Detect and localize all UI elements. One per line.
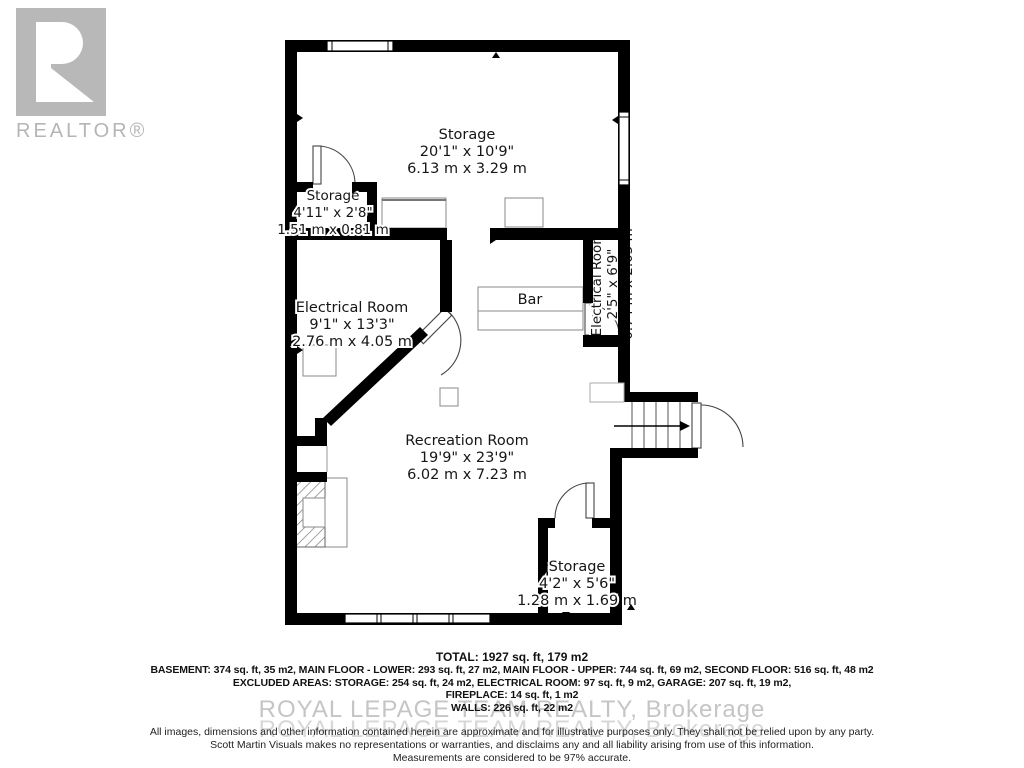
appliance-box	[505, 198, 543, 227]
window-top	[327, 41, 393, 51]
window-right	[619, 112, 629, 185]
disclaimer-line: Scott Martin Visuals makes no representa…	[0, 739, 1024, 752]
area-line-floors: BASEMENT: 374 sq. ft, 35 m2, MAIN FLOOR …	[0, 664, 1024, 677]
wall-stair-bottom	[610, 448, 698, 458]
door-leaf-storage-lower	[586, 483, 594, 518]
realtor-label: REALTOR®	[16, 120, 147, 143]
room-label-recreation: Recreation Room 19'9" x 23'9" 6.02 m x 7…	[405, 433, 528, 483]
wall-electrical-right	[440, 240, 452, 312]
area-line-walls: WALLS: 226 sq. ft, 22 m2	[0, 702, 1024, 715]
area-line-excluded: EXCLUDED AREAS: STORAGE: 254 sq. ft, 24 …	[0, 677, 1024, 690]
room-dim-imperial: 19'9" x 23'9"	[420, 450, 514, 466]
staircase	[614, 402, 690, 448]
room-name: Storage	[439, 127, 496, 143]
realtor-logo: REALTOR®	[16, 8, 147, 143]
shelf-counter	[382, 198, 446, 228]
wall-exterior-left	[285, 40, 297, 625]
dimension-tick-icon	[492, 52, 500, 58]
support-post	[440, 388, 458, 406]
wall-niche-bottom	[297, 472, 327, 482]
wall-electrical-right-room-bottom	[583, 335, 630, 347]
total-area: TOTAL: 1927 sq. ft, 179 m2	[0, 650, 1024, 664]
bar-counter-front	[478, 311, 583, 330]
room-name: Recreation Room	[405, 433, 528, 449]
room-name: Storage	[307, 188, 360, 204]
disclaimer-line: Measurements are considered to be 97% ac…	[0, 752, 1024, 765]
door-arc-storage-small	[317, 146, 355, 184]
dimension-tick-icon	[612, 116, 618, 124]
room-dim-metric: 1.51 m x 0.81 m	[277, 222, 389, 238]
fireplace-firebox	[303, 498, 325, 527]
logo-r-stem	[36, 22, 51, 102]
door-arc-stairs	[701, 405, 743, 447]
dimension-tick-icon	[297, 114, 303, 122]
door-leaf-storage-small	[313, 146, 321, 184]
wall-electrical-right-room-left	[583, 240, 593, 303]
wall-stair-top	[622, 392, 698, 402]
room-name: Storage	[549, 559, 606, 575]
door-arc-storage-lower	[555, 483, 590, 518]
disclaimer-line: All images, dimensions and other informa…	[0, 726, 1024, 739]
room-label-electrical: Electrical Room 9'1" x 13'3" 2.76 m x 4.…	[292, 300, 412, 350]
room-dim-imperial: 9'1" x 13'3"	[309, 317, 394, 333]
stair-direction-arrow-icon	[680, 421, 690, 431]
room-label-storage-main: Storage 20'1" x 10'9" 6.13 m x 3.29 m	[407, 127, 527, 177]
wall-exterior-right-upper	[618, 40, 630, 402]
room-dim-metric: 1.28 m x 1.69 m	[517, 593, 637, 609]
room-dim-imperial: 4'2" x 5'6"	[539, 576, 615, 592]
room-dim-imperial: 20'1" x 10'9"	[420, 144, 514, 160]
door-leaf-stairs	[692, 403, 701, 448]
disclaimer: All images, dimensions and other informa…	[0, 726, 1024, 765]
area-line-fireplace: FIREPLACE: 14 sq. ft, 1 m2	[0, 689, 1024, 702]
bar-label: Bar	[518, 292, 543, 308]
wall-storage-lower-top-b	[592, 518, 622, 528]
wall-niche-top	[297, 436, 327, 446]
room-dim-imperial: 4'11" x 2'8"	[293, 205, 372, 221]
realtor-r-icon	[16, 8, 106, 118]
wall-interior-a-right	[490, 228, 630, 240]
fireplace-hearth	[325, 478, 347, 547]
room-name: Electrical Room	[296, 300, 409, 316]
room-dim-metric: 6.02 m x 7.23 m	[407, 467, 527, 483]
floor-plan-page: REALTOR®	[0, 0, 1024, 768]
room-dim-metric: 6.13 m x 3.29 m	[407, 161, 527, 177]
room-dim-metric: 2.76 m x 4.05 m	[292, 334, 412, 350]
fixtures	[295, 198, 583, 547]
area-summary: TOTAL: 1927 sq. ft, 179 m2 BASEMENT: 374…	[0, 650, 1024, 714]
stair-opening	[590, 383, 624, 402]
